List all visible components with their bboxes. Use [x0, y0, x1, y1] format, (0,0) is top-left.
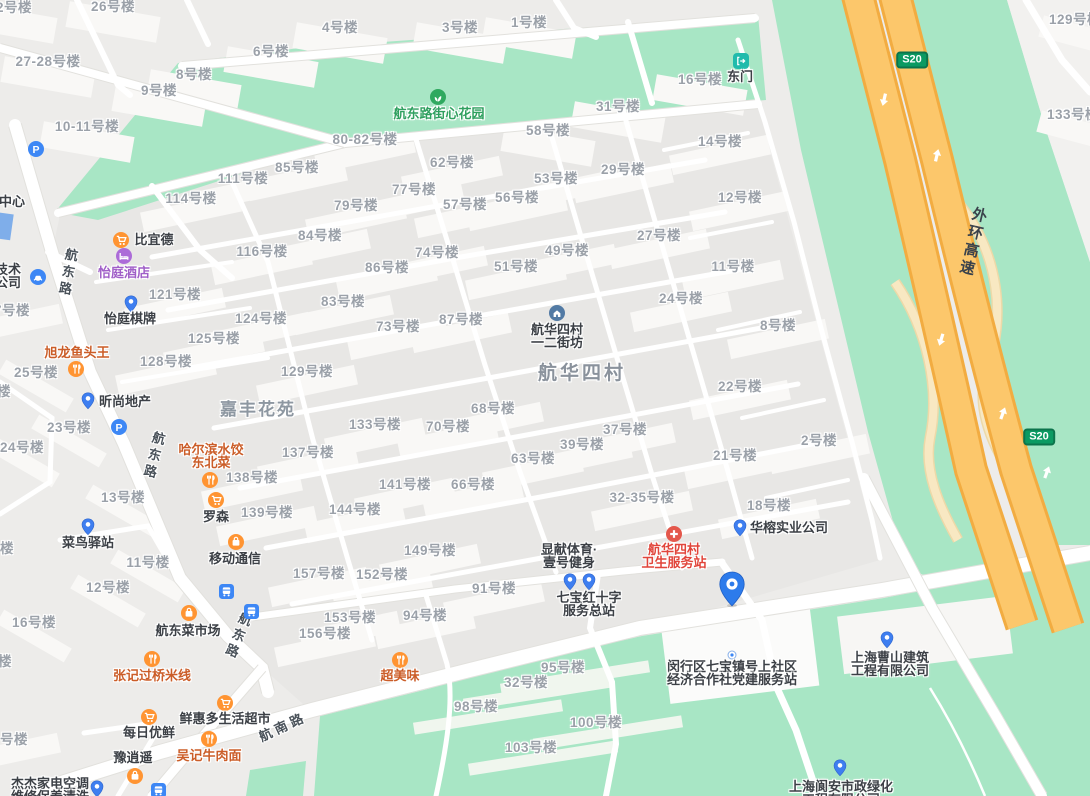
restaurant-icon-harbin-dumplings[interactable]	[202, 472, 218, 493]
poi-label-hangdong-market[interactable]: 航东菜市场	[155, 624, 220, 638]
building-label: 51号楼	[494, 260, 538, 274]
bag-icon-yuxiaoyao[interactable]	[127, 768, 143, 789]
building-label: 12号楼	[718, 191, 762, 205]
bus-icon-bus-stop-2[interactable]	[244, 604, 259, 624]
building-label: 26号楼	[91, 0, 135, 14]
building-label: 129号楼	[1049, 13, 1090, 27]
building-label: 9号楼	[141, 84, 177, 98]
building-label: 94号楼	[403, 609, 447, 623]
building-label: 152号楼	[356, 568, 408, 582]
building-label: 4号楼	[322, 21, 358, 35]
building-label: 116号楼	[236, 245, 287, 259]
building-label: 37号楼	[603, 423, 647, 437]
building-label: 32-35号楼	[609, 491, 674, 505]
building-label: 103号楼	[505, 741, 557, 755]
poi-label-yuxiaoyao[interactable]: 豫逍遥	[113, 751, 152, 765]
road-label: 航东路	[56, 247, 78, 300]
building-label: 楼	[0, 655, 12, 669]
building-label: 129号楼	[281, 365, 333, 379]
poi-label-hanghua-health-station[interactable]: 卫生服务站	[641, 556, 706, 570]
poi-label-mobile-store[interactable]: 移动通信	[209, 552, 261, 566]
svg-text:P: P	[115, 422, 122, 434]
building-label: 8号楼	[176, 68, 212, 82]
building-label: 49号楼	[545, 244, 589, 258]
map-canvas[interactable]: 42号楼26号楼27-28号楼8号楼9号楼6号楼4号楼10-11号楼3号楼1号楼…	[0, 0, 1090, 796]
bus-icon-bus-stop-1[interactable]	[219, 584, 234, 604]
building-label: 1号楼	[511, 16, 547, 30]
building-label: 86号楼	[365, 261, 409, 275]
poi-label-xianxian-gym[interactable]: 壹号健身	[543, 556, 595, 570]
building-label: 6号楼	[253, 45, 289, 59]
building-label: 25号楼	[14, 366, 58, 380]
building-label: 133号楼	[349, 418, 401, 432]
poi-label-yiting-hotel[interactable]: 怡庭酒店	[98, 266, 150, 280]
poi-label-tech-company-partial[interactable]: 公司	[0, 276, 21, 290]
building-label: 79号楼	[334, 199, 378, 213]
area-label: 航华四村	[538, 364, 626, 384]
poi-label-harbin-dumplings[interactable]: 东北菜	[191, 456, 230, 470]
route-shield-s20: S20	[896, 52, 928, 69]
poi-label-huarong-industry[interactable]: 华榕实业公司	[750, 521, 828, 535]
building-label: 114号楼	[165, 192, 216, 206]
building-label: 27号楼	[637, 229, 681, 243]
building-label: 138号楼	[226, 471, 278, 485]
building-label: 111号楼	[218, 172, 269, 186]
building-label: 31号楼	[596, 100, 640, 114]
poi-label-cainiao-station[interactable]: 菜鸟驿站	[62, 536, 114, 550]
pin-icon-huarong-industry[interactable]	[733, 519, 747, 542]
building-label: 14号楼	[698, 135, 742, 149]
building-label: 70号楼	[426, 420, 470, 434]
building-label: 24号楼	[0, 441, 44, 455]
poi-label-meiri-youxian[interactable]: 每日优鲜	[123, 726, 175, 740]
building-label: 58号楼	[526, 124, 570, 138]
building-label: 39号楼	[560, 438, 604, 452]
building-label: 91号楼	[472, 582, 516, 596]
building-label: 63号楼	[511, 452, 555, 466]
building-label: 100号楼	[570, 716, 622, 730]
building-label: 24号楼	[659, 292, 703, 306]
building-label: 125号楼	[188, 332, 240, 346]
building-label: 84号楼	[298, 229, 342, 243]
building-label: 21号楼	[713, 449, 757, 463]
building-label: 156号楼	[299, 627, 351, 641]
poi-label-minhang-party-station[interactable]: 经济合作社党建服务站	[667, 673, 797, 687]
building-label: 2号楼	[801, 434, 837, 448]
building-label: 83号楼	[321, 295, 365, 309]
building-label: 62号楼	[430, 156, 474, 170]
labels-layer: 42号楼26号楼27-28号楼8号楼9号楼6号楼4号楼10-11号楼3号楼1号楼…	[0, 0, 1090, 796]
bus-icon-bus-stop-3[interactable]	[151, 783, 166, 796]
building-label: 56号楼	[495, 191, 539, 205]
building-label: 3号楼	[442, 21, 478, 35]
building-label: 8号楼	[760, 319, 796, 333]
building-label: 149号楼	[404, 544, 456, 558]
poi-label-biyide[interactable]: 比宜德	[134, 233, 173, 247]
building-label: 16号楼	[12, 616, 56, 630]
poi-label-zhangji-rice-noodles[interactable]: 张记过桥米线	[113, 669, 191, 683]
building-label: 16号楼	[678, 73, 722, 87]
road-label: 航东路	[140, 430, 166, 483]
building-label: 85号楼	[275, 161, 319, 175]
poi-label-lawson[interactable]: 罗森	[203, 510, 229, 524]
building-label: 10-11号楼	[55, 120, 119, 134]
building-label: 144号楼	[329, 503, 381, 517]
parking-icon-parking-1[interactable]: P	[28, 141, 44, 162]
building-label: 6号楼	[0, 733, 28, 747]
poi-label-jiejie-appliance[interactable]: 维修保养清洗	[11, 790, 89, 796]
poi-label-chaomeiwei[interactable]: 超美味	[380, 669, 419, 683]
poi-label-east-gate[interactable]: 东门	[727, 70, 753, 84]
selected-location-marker[interactable]	[718, 571, 746, 613]
pin-icon-jiejie-appliance[interactable]	[90, 780, 104, 796]
building-label: 23号楼	[47, 421, 91, 435]
poi-label-xulong-fish-restaurant[interactable]: 旭龙鱼头王	[44, 346, 109, 360]
building-label: 73号楼	[376, 320, 420, 334]
poi-label-xinshang-realty[interactable]: 昕尚地产	[99, 395, 151, 409]
building-label: 128号楼	[140, 355, 192, 369]
poi-label-caoshan-construction[interactable]: 工程有限公司	[851, 664, 929, 678]
route-shield-s20: S20	[1023, 429, 1055, 446]
building-label: 楼	[0, 385, 11, 399]
building-label: 141号楼	[379, 478, 431, 492]
building-label: 22号楼	[718, 380, 762, 394]
building-label: 7号楼	[0, 304, 30, 318]
building-label: 124号楼	[235, 312, 287, 326]
building-label: 68号楼	[471, 402, 515, 416]
building-label: 11号楼	[711, 260, 754, 274]
svg-text:P: P	[32, 144, 39, 156]
highway-label: 外环高速	[956, 205, 988, 279]
building-label: 号楼	[0, 542, 14, 556]
building-label: 18号楼	[747, 499, 791, 513]
building-label: 66号楼	[451, 478, 495, 492]
pin-icon-xinshang-realty[interactable]	[81, 392, 95, 415]
poi-label-center-partial[interactable]: 中心	[0, 195, 25, 209]
restaurant-icon-xulong-fish-restaurant[interactable]	[68, 361, 84, 382]
building-label: 133号楼	[1047, 108, 1090, 122]
building-label: 77号楼	[392, 183, 436, 197]
building-label: 139号楼	[241, 506, 293, 520]
building-label: 32号楼	[504, 676, 548, 690]
building-label: 153号楼	[324, 611, 376, 625]
building-label: 11号楼	[126, 556, 169, 570]
building-label: 42号楼	[0, 1, 32, 15]
building-label: 157号楼	[293, 567, 345, 581]
poi-label-hanghua-jiefang[interactable]: 一二街坊	[531, 336, 583, 350]
building-label: 95号楼	[541, 661, 585, 675]
poi-label-jiexin-park[interactable]: 航东路街心花园	[393, 107, 484, 121]
building-label: 137号楼	[282, 446, 334, 460]
building-label: 98号楼	[454, 700, 498, 714]
area-label: 嘉丰花苑	[220, 401, 296, 419]
poi-label-wuji-beef-noodles[interactable]: 吴记牛肉面	[176, 749, 241, 763]
building-label: 12号楼	[86, 581, 130, 595]
building-label: 53号楼	[534, 172, 578, 186]
building-label: 74号楼	[415, 246, 459, 260]
building-label: 57号楼	[443, 198, 487, 212]
car-icon-tech-company-partial[interactable]	[30, 269, 46, 290]
building-label: 13号楼	[101, 491, 145, 505]
poi-label-yiting-chess[interactable]: 怡庭棋牌	[104, 312, 156, 326]
building-label: 87号楼	[439, 313, 483, 327]
building-label: 27-28号楼	[15, 55, 80, 69]
poi-label-xianhuiduo-market[interactable]: 鲜惠多生活超市	[179, 712, 270, 726]
poi-label-qibao-redcross-station[interactable]: 服务总站	[563, 604, 615, 618]
building-label: 80-82号楼	[332, 133, 397, 147]
building-label: 121号楼	[149, 288, 201, 302]
building-label: 29号楼	[601, 163, 645, 177]
parking-icon-parking-2[interactable]: P	[111, 419, 127, 440]
